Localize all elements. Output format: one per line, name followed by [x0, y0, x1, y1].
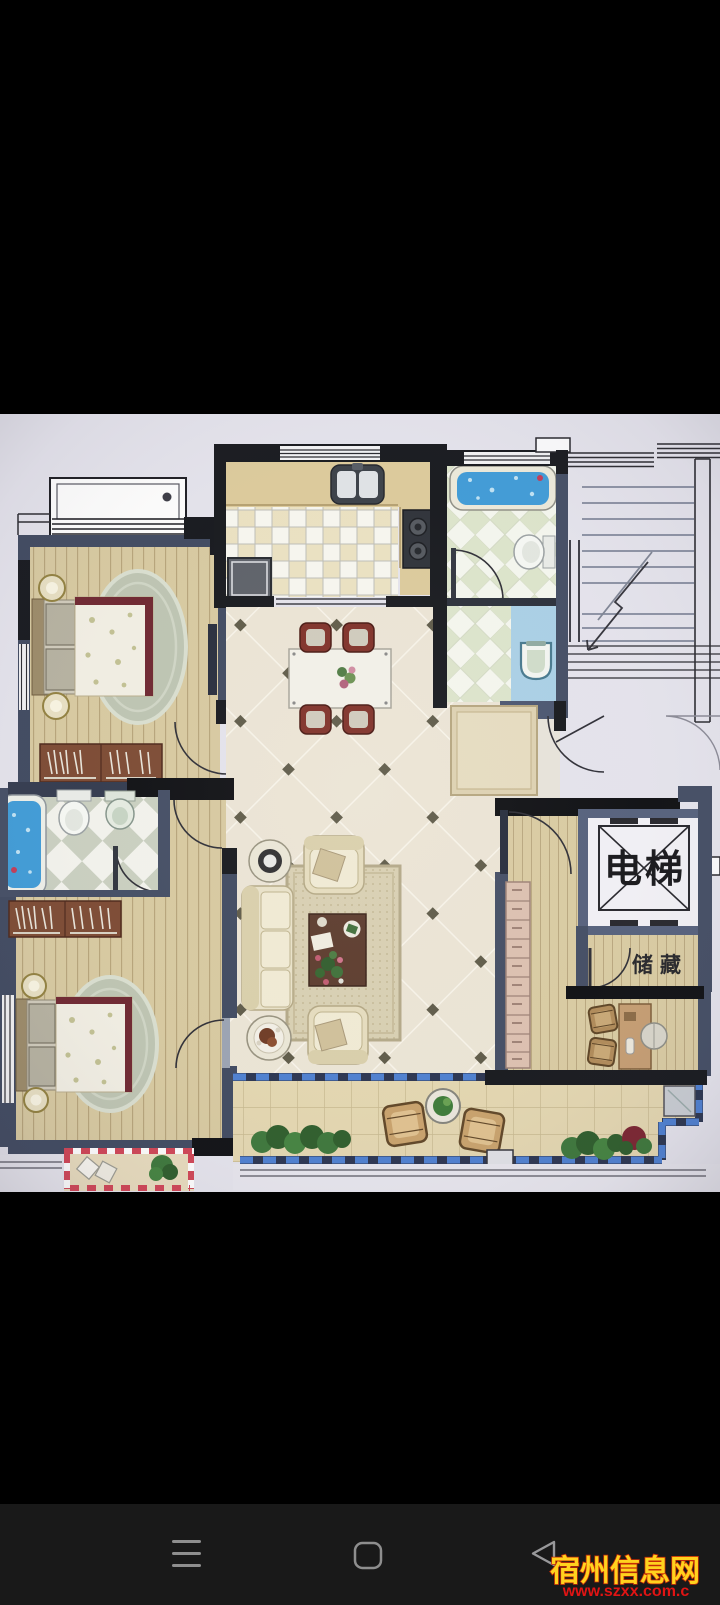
svg-text:www.szxx.com.c: www.szxx.com.c — [562, 1583, 690, 1600]
